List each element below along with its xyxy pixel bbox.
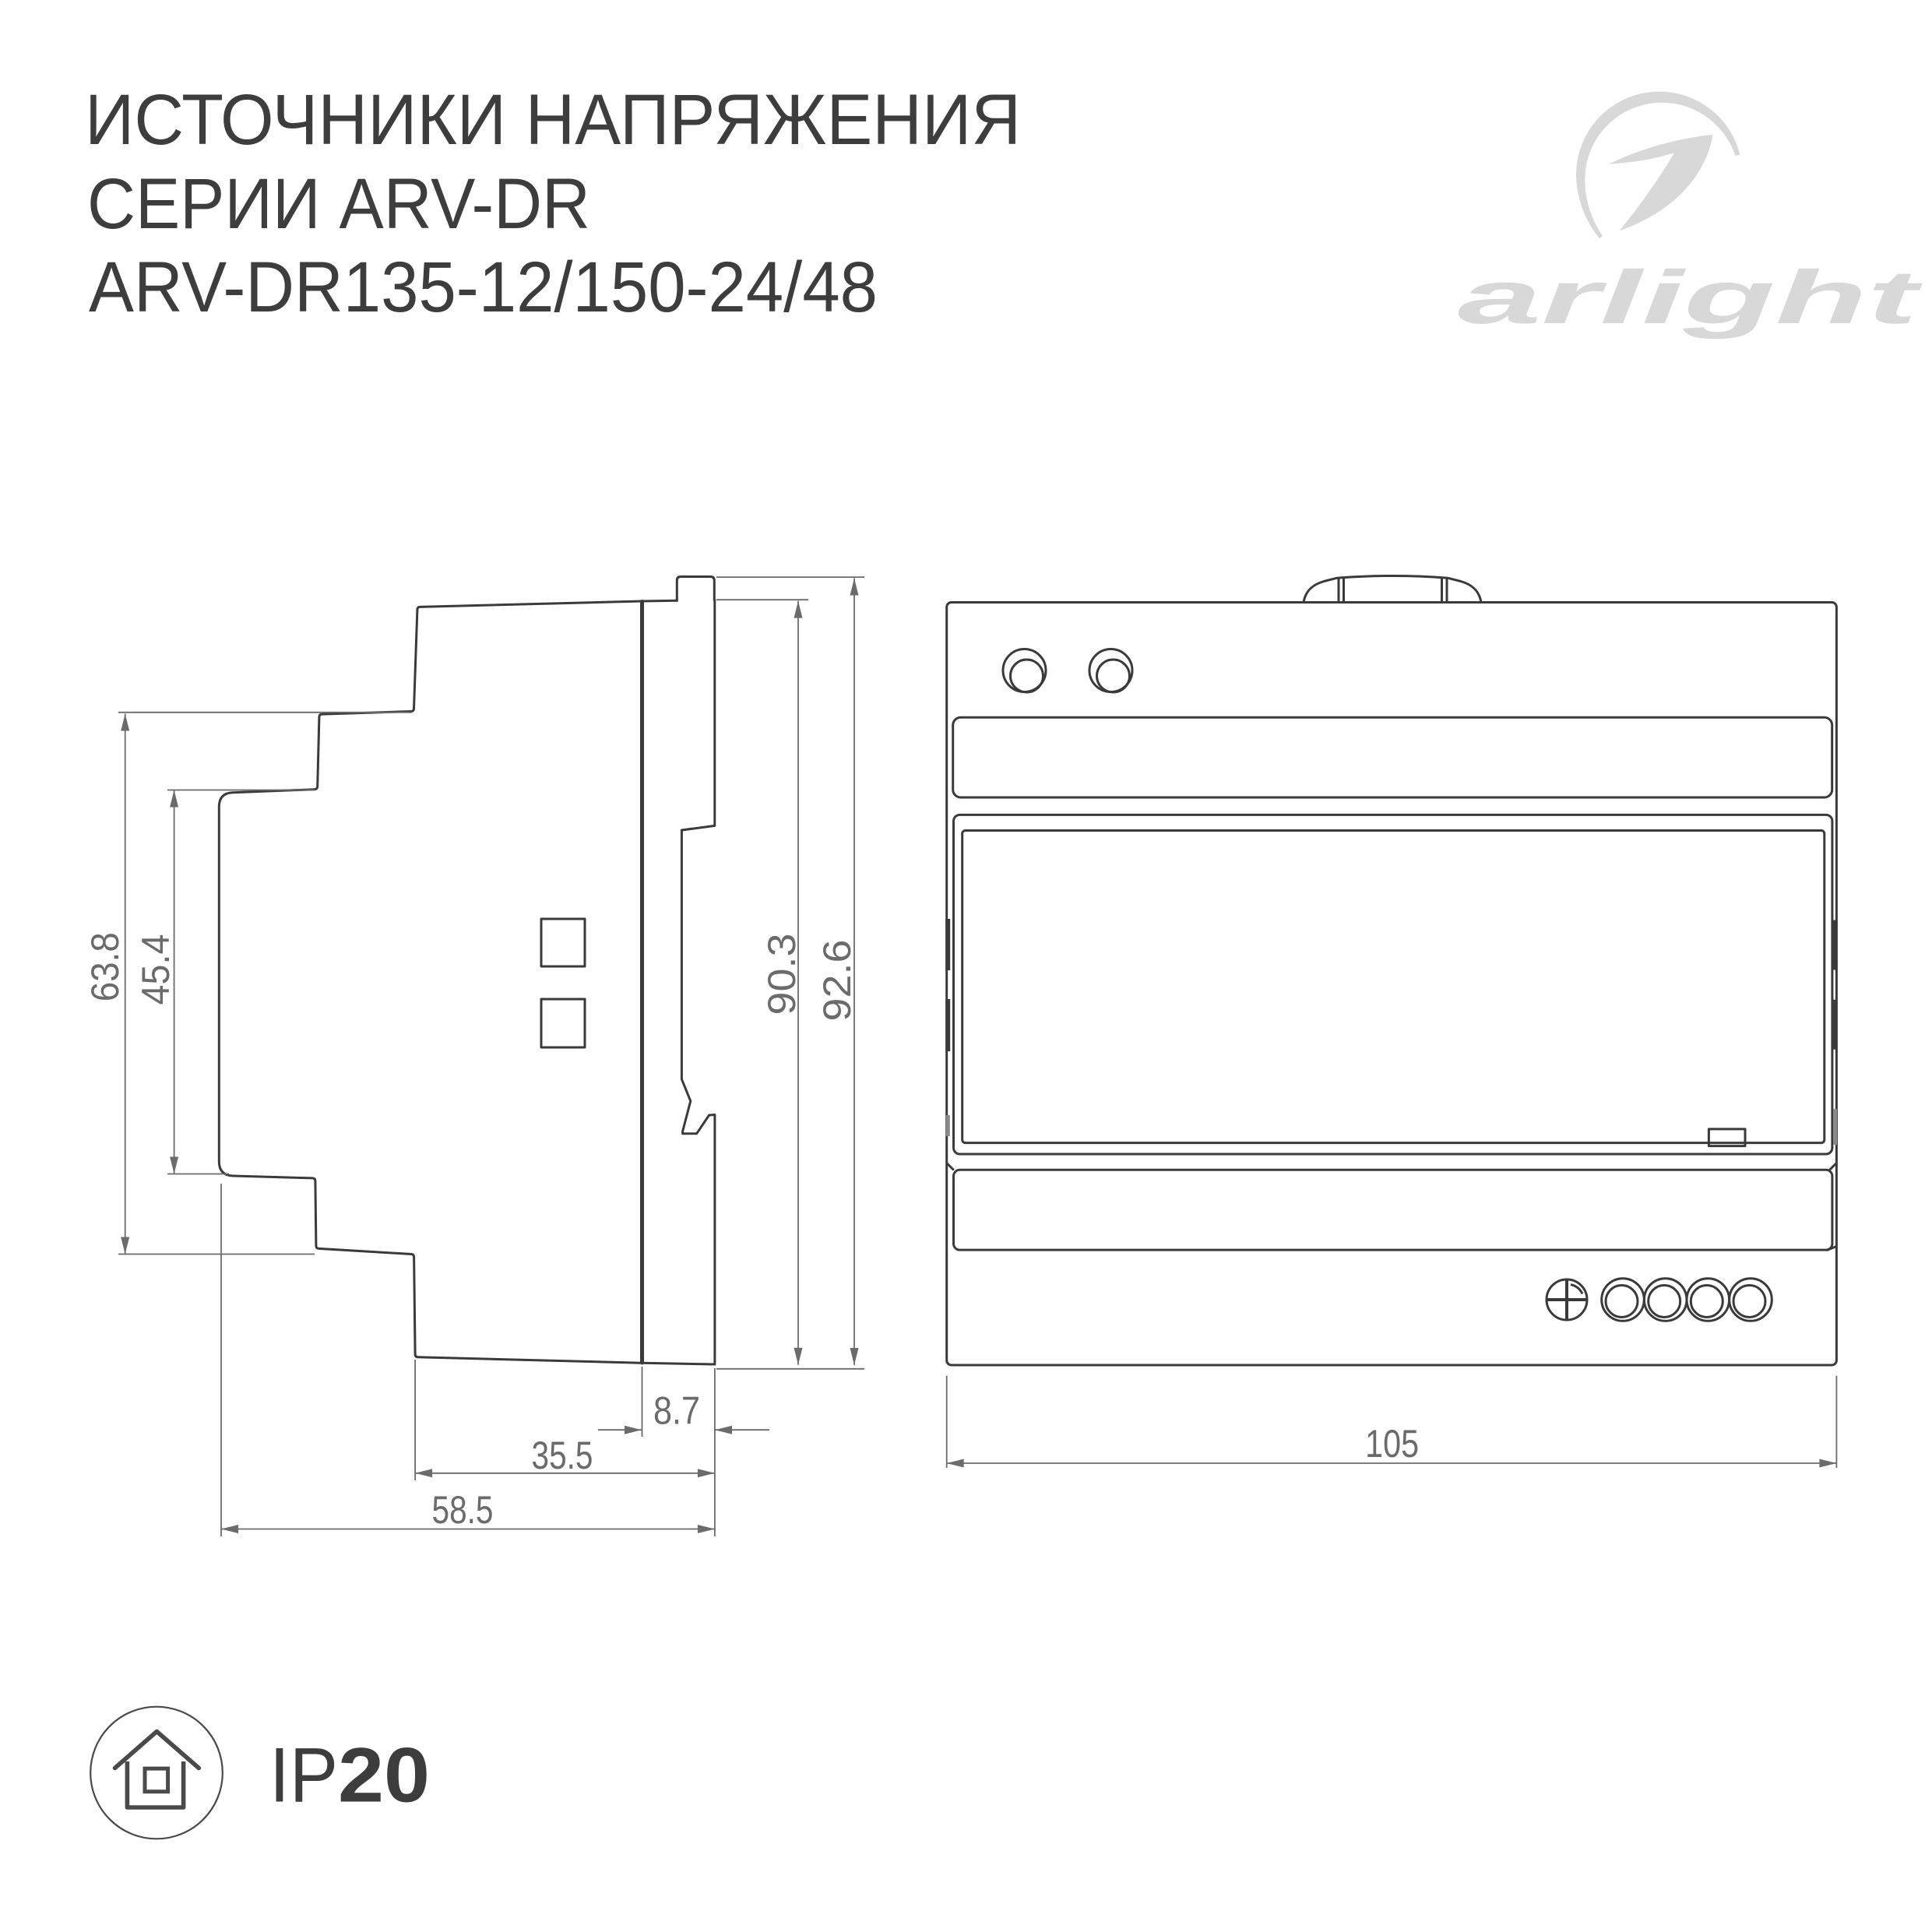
svg-text:90.3: 90.3 <box>760 934 804 1015</box>
svg-text:arlight: arlight <box>1458 255 1923 340</box>
svg-text:35.5: 35.5 <box>532 1434 593 1477</box>
svg-text:СЕРИИ ARV-DR: СЕРИИ ARV-DR <box>87 164 590 244</box>
svg-text:IP20: IP20 <box>269 1731 430 1818</box>
svg-text:8.7: 8.7 <box>653 1389 700 1433</box>
svg-text:63.8: 63.8 <box>83 932 127 1001</box>
svg-text:ИСТОЧНИКИ НАПРЯЖЕНИЯ: ИСТОЧНИКИ НАПРЯЖЕНИЯ <box>85 80 1021 160</box>
svg-text:92.6: 92.6 <box>815 940 859 1022</box>
svg-text:ARV-DR135-12/150-24/48: ARV-DR135-12/150-24/48 <box>89 248 878 327</box>
svg-text:105: 105 <box>1365 1422 1419 1466</box>
svg-text:58.5: 58.5 <box>432 1488 494 1532</box>
svg-text:45.4: 45.4 <box>134 934 178 1005</box>
